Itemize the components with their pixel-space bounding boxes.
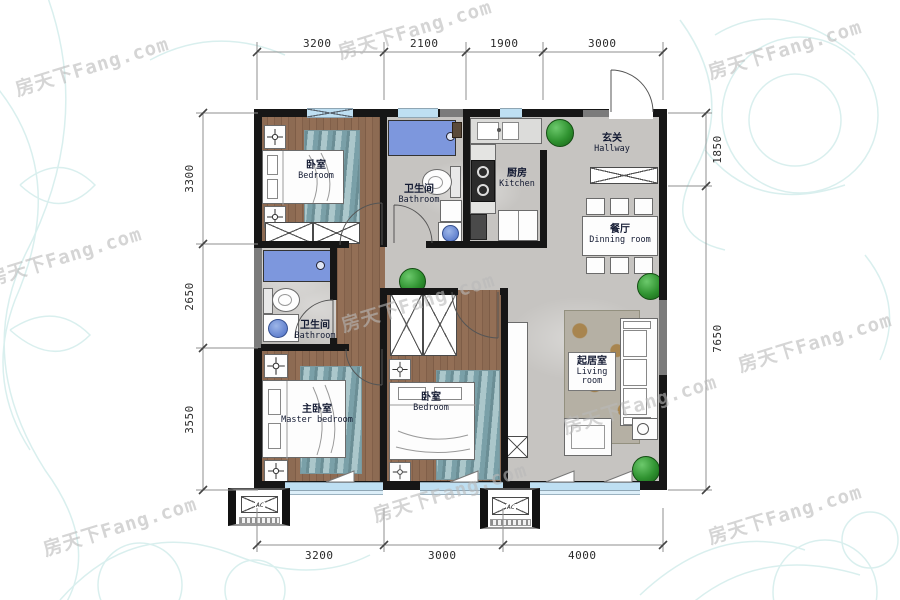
bedroom-bottom-door-swing xyxy=(452,292,498,338)
dimension-ticks xyxy=(199,48,710,549)
entry-door-swing xyxy=(611,70,653,112)
annotation-layer xyxy=(0,0,900,600)
dim-top-1: 3200 xyxy=(303,37,332,50)
dim-left-1: 3300 xyxy=(183,164,196,193)
dim-bottom-3: 4000 xyxy=(568,549,597,562)
dim-right-1: 1850 xyxy=(711,135,724,164)
floorplan-canvas: AC AC xyxy=(0,0,900,600)
bay-window-triangle xyxy=(546,471,574,482)
master-door-swing xyxy=(346,349,382,385)
bay-window-triangle xyxy=(450,471,478,482)
bay-window-triangle xyxy=(604,471,632,482)
dim-left-2: 2650 xyxy=(183,282,196,311)
bathroom-mid-door-swing xyxy=(295,300,333,338)
dim-bottom-1: 3200 xyxy=(305,549,334,562)
dim-top-4: 3000 xyxy=(588,37,617,50)
dimension-lines xyxy=(196,42,712,552)
dim-top-3: 1900 xyxy=(490,37,519,50)
bedroom-top-door-swing xyxy=(340,203,382,245)
bathroom-top-door-swing xyxy=(394,205,432,243)
dim-top-2: 2100 xyxy=(410,37,439,50)
dim-bottom-2: 3000 xyxy=(428,549,457,562)
dim-right-2: 7650 xyxy=(711,324,724,353)
bay-window-triangle xyxy=(326,471,354,482)
dim-left-3: 3550 xyxy=(183,405,196,434)
